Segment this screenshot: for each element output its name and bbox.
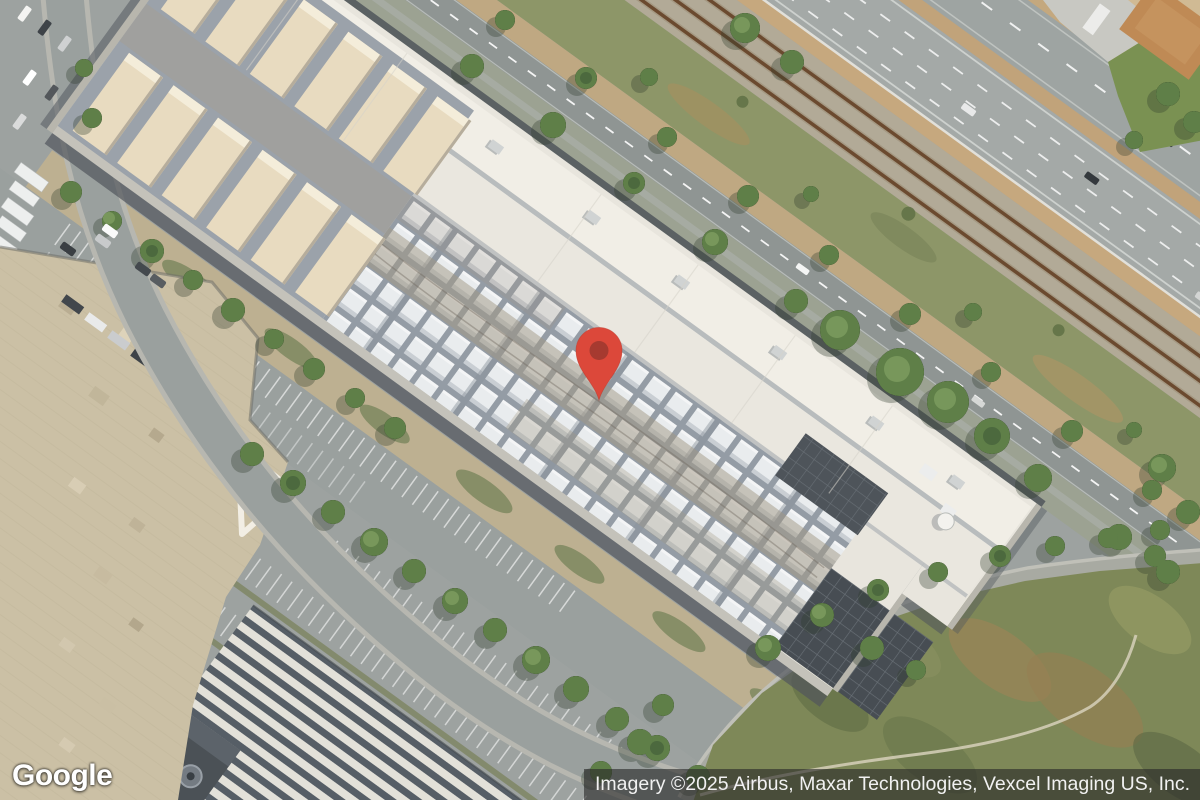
- map-pin-icon[interactable]: [573, 322, 625, 402]
- pin-body: [576, 328, 622, 401]
- attribution-bar: Imagery ©2025 Airbus, Maxar Technologies…: [584, 769, 1200, 800]
- pin-dot: [590, 341, 609, 360]
- imagery-attribution-text: Imagery ©2025 Airbus, Maxar Technologies…: [595, 773, 1190, 795]
- google-maps-satellite-view[interactable]: Google Imagery ©2025 Airbus, Maxar Techn…: [0, 0, 1200, 800]
- google-logo[interactable]: Google: [12, 759, 112, 793]
